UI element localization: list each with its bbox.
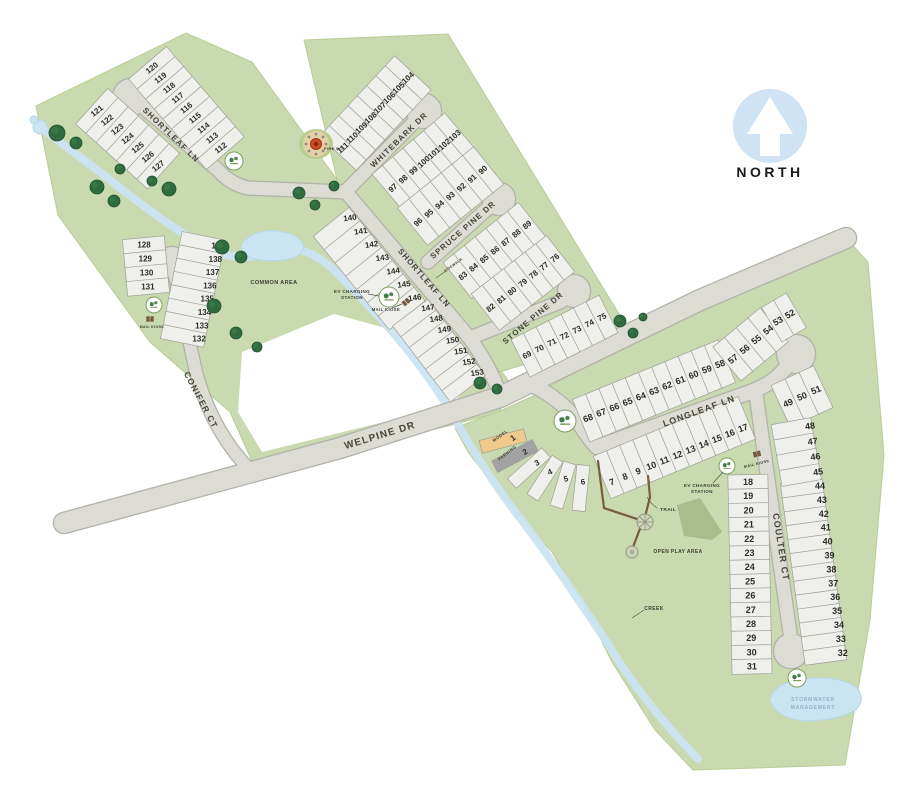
lot-number: 21 [744,520,754,530]
lot-number: 130 [140,269,154,278]
entry-monument-icon [719,458,735,474]
fire-pit-icon [299,129,333,159]
north-arrow: NORTH [733,89,807,180]
site-plan-map: 1201191181171161151141131121211221231241… [0,0,906,792]
lot-number: 48 [804,420,815,431]
lot-number: 18 [743,477,753,487]
lot-number: 26 [745,591,755,601]
stormwater-label: STORMWATER [791,697,835,703]
lot-number: 43 [817,495,827,505]
ev-charging-label: EV CHARGING [334,289,370,294]
tree-icon [310,200,320,210]
lot-number: 136 [203,281,217,290]
lot-number: 129 [139,255,153,264]
entry-monument-icon [225,152,243,170]
lot-number: 29 [746,633,756,643]
lot-number: 45 [812,466,823,477]
lot-number: 35 [832,606,842,616]
mail-kiosk-label: MAIL KIOSK [372,307,401,312]
tree-icon [329,181,339,191]
lot-group-coulter-west: 1819202122232425262728293031 [728,474,772,674]
entry-monument-icon [379,287,399,307]
common-area-pond [242,231,304,261]
lot-number: 38 [826,564,836,574]
lot-number: 145 [397,279,412,290]
mail-kiosk-label: MAIL KIOSK [140,325,165,329]
tree-icon [147,176,157,186]
lot-number: 137 [206,268,220,277]
tree-icon [108,195,120,207]
stormwater-label: MANAGEMENT [791,705,835,711]
lot-number: 42 [819,509,829,519]
tree-icon [235,251,247,263]
lot-number: 24 [745,562,755,572]
site-plan-canvas: 1201191181171161151141131121211221231241… [0,0,906,792]
tree-icon [215,240,229,254]
lot-number: 40 [823,537,833,547]
lot-number: 22 [744,534,754,544]
ev-charging-label: STATION [691,489,713,494]
fire-pit-label: FIRE PIT [324,146,344,151]
ev-charging-label: STATION [341,295,363,300]
lot-number: 144 [386,266,401,277]
tree-icon [70,137,82,149]
lot-number: 20 [744,505,754,515]
lot-number: 33 [836,634,846,644]
trail-node-icon [626,546,638,558]
lot-number: 143 [375,252,390,263]
tree-icon [492,384,502,394]
tree-icon [614,315,626,327]
tree-icon [115,164,125,174]
lot-number: 30 [747,647,757,657]
entry-monument-icon [554,410,576,432]
lot-number: 132 [192,335,206,344]
lot-number: 142 [364,239,379,250]
lot-number: 34 [834,620,844,630]
tree-icon [207,299,221,313]
lot-number: 46 [810,451,821,462]
lot-number: 39 [824,551,834,561]
tree-icon [628,328,638,338]
lot-number: 131 [141,283,155,292]
lot-number: 41 [821,523,831,533]
tree-icon [230,327,242,339]
tree-icon [49,125,65,141]
lot-number: 36 [830,592,840,602]
tree-icon [162,182,176,196]
tree-icon [293,187,305,199]
creek-source-pond-small [30,116,38,124]
trail-plaza-icon [637,514,653,530]
common-area-label: COMMON AREA [251,280,298,286]
entry-monument-icon [788,669,806,687]
lot-number: 141 [354,226,369,237]
lot-number: 27 [746,605,756,615]
lot-number: 32 [838,648,848,658]
lot-number: 28 [746,619,756,629]
tree-icon [474,377,486,389]
lot-number: 140 [343,213,358,224]
ev-charging-label: EV CHARGING [684,483,720,488]
lot-number: 44 [815,481,825,491]
north-label: NORTH [736,164,803,180]
lot-number: 31 [747,662,757,672]
tree-icon [90,180,104,194]
open-play-area-label: OPEN PLAY AREA [653,549,702,555]
entry-monument-icon [146,297,162,313]
trail-label: TRAIL [660,507,676,513]
tree-icon [252,342,262,352]
tree-icon [639,313,647,321]
lot-number: 19 [743,491,753,501]
creek-label: CREEK [644,606,664,612]
lot-number: 133 [195,321,209,330]
lot-number: 23 [744,548,754,558]
lot-number: 47 [807,436,818,447]
lot-number: 37 [828,578,838,588]
lot-number: 138 [209,255,223,264]
lot-number: 25 [745,576,755,586]
lot-group-conifer-west: 128129130131 [122,236,169,296]
lot-number: 128 [137,241,151,250]
lot-number: 153 [470,367,485,378]
